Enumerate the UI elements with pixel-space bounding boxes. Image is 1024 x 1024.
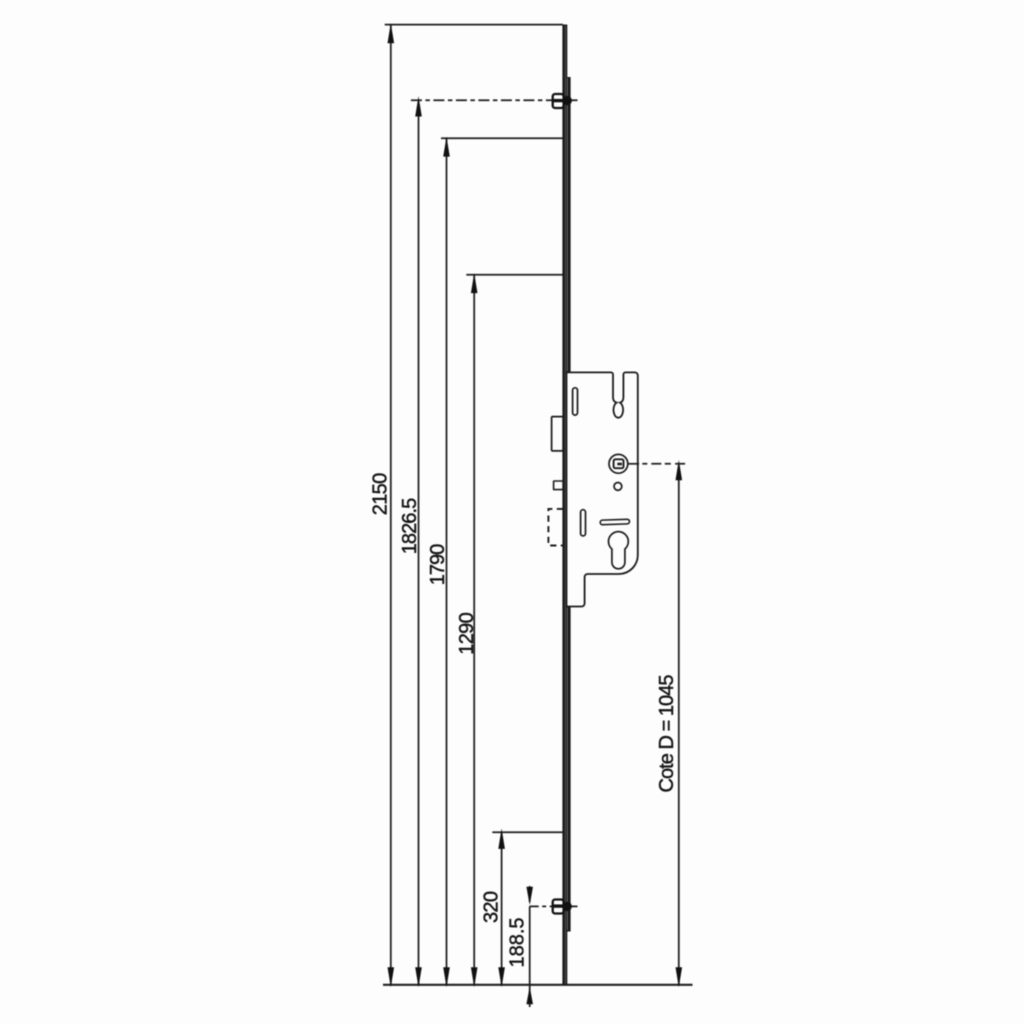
svg-text:Cote D = 1045: Cote D = 1045 xyxy=(656,675,678,793)
svg-text:1826.5: 1826.5 xyxy=(399,498,421,555)
svg-text:2150: 2150 xyxy=(370,473,392,516)
svg-text:188.5: 188.5 xyxy=(507,918,529,968)
svg-text:1790: 1790 xyxy=(427,544,449,586)
svg-text:1290: 1290 xyxy=(456,612,478,655)
svg-text:320: 320 xyxy=(481,891,503,923)
